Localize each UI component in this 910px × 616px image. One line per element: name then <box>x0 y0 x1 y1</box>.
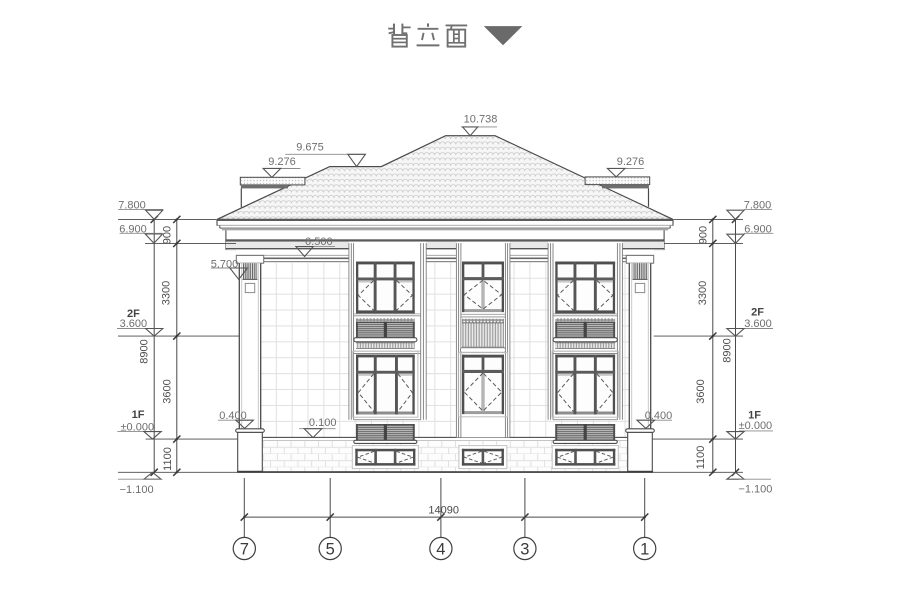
svg-text:7: 7 <box>240 540 249 558</box>
svg-text:6.900: 6.900 <box>744 224 772 236</box>
svg-text:3: 3 <box>520 540 529 558</box>
svg-text:3300: 3300 <box>161 281 173 305</box>
svg-text:−1.100: −1.100 <box>120 484 154 496</box>
svg-text:3600: 3600 <box>162 379 174 403</box>
svg-text:6.900: 6.900 <box>119 224 147 236</box>
svg-text:9.276: 9.276 <box>617 156 645 168</box>
svg-text:2F: 2F <box>751 307 764 319</box>
svg-text:8900: 8900 <box>139 339 151 363</box>
svg-text:±0.000: ±0.000 <box>739 420 773 432</box>
svg-text:9.675: 9.675 <box>296 141 324 153</box>
svg-text:14090: 14090 <box>428 504 459 516</box>
svg-text:9.276: 9.276 <box>268 156 296 168</box>
svg-text:1F: 1F <box>132 409 145 421</box>
svg-text:10.738: 10.738 <box>464 114 498 126</box>
svg-text:1: 1 <box>640 540 649 558</box>
svg-text:900: 900 <box>698 226 710 244</box>
svg-text:0.100: 0.100 <box>309 417 337 429</box>
svg-text:3300: 3300 <box>697 281 709 305</box>
svg-text:1100: 1100 <box>162 447 174 471</box>
svg-text:1100: 1100 <box>695 446 707 470</box>
svg-text:3600: 3600 <box>695 379 707 403</box>
svg-text:−1.100: −1.100 <box>738 484 772 496</box>
svg-text:900: 900 <box>162 226 174 244</box>
svg-text:5: 5 <box>326 540 335 558</box>
svg-text:8900: 8900 <box>721 338 733 362</box>
svg-text:4: 4 <box>436 540 445 558</box>
